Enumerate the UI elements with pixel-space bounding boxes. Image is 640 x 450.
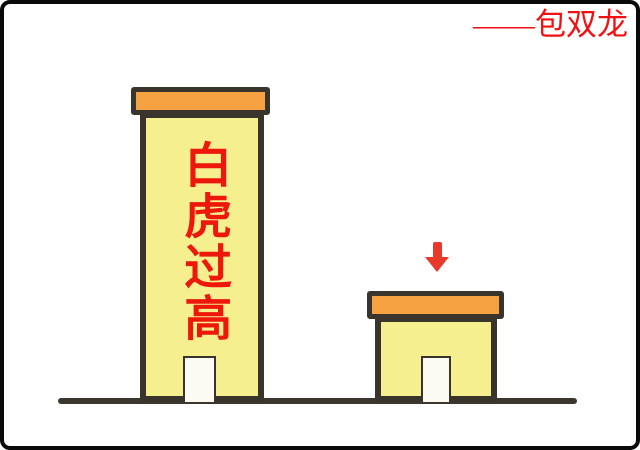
tall-building-roof (131, 87, 270, 115)
short-building-roof (367, 291, 504, 319)
tall-building-door (183, 356, 216, 402)
arrow-down-icon (425, 242, 450, 272)
short-building-door (421, 356, 451, 402)
ground-line (58, 398, 577, 404)
diagram-canvas: ——包双龙 白虎过高 (0, 0, 640, 450)
arrow-down-head (425, 257, 449, 272)
tall-building-label-wrap: 白虎过高 (140, 140, 264, 355)
author-signature: ——包双龙 (473, 8, 628, 42)
image-frame-border (0, 0, 640, 450)
tall-building-label: 白虎过高 (177, 140, 227, 344)
